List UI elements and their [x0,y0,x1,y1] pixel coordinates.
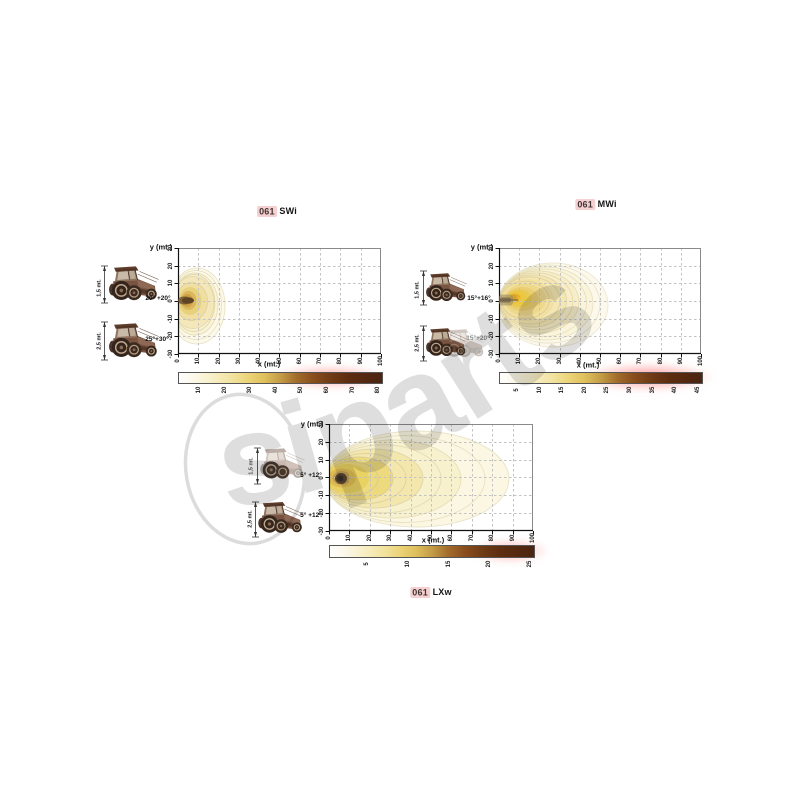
svg-text:siparts: siparts [205,234,622,536]
